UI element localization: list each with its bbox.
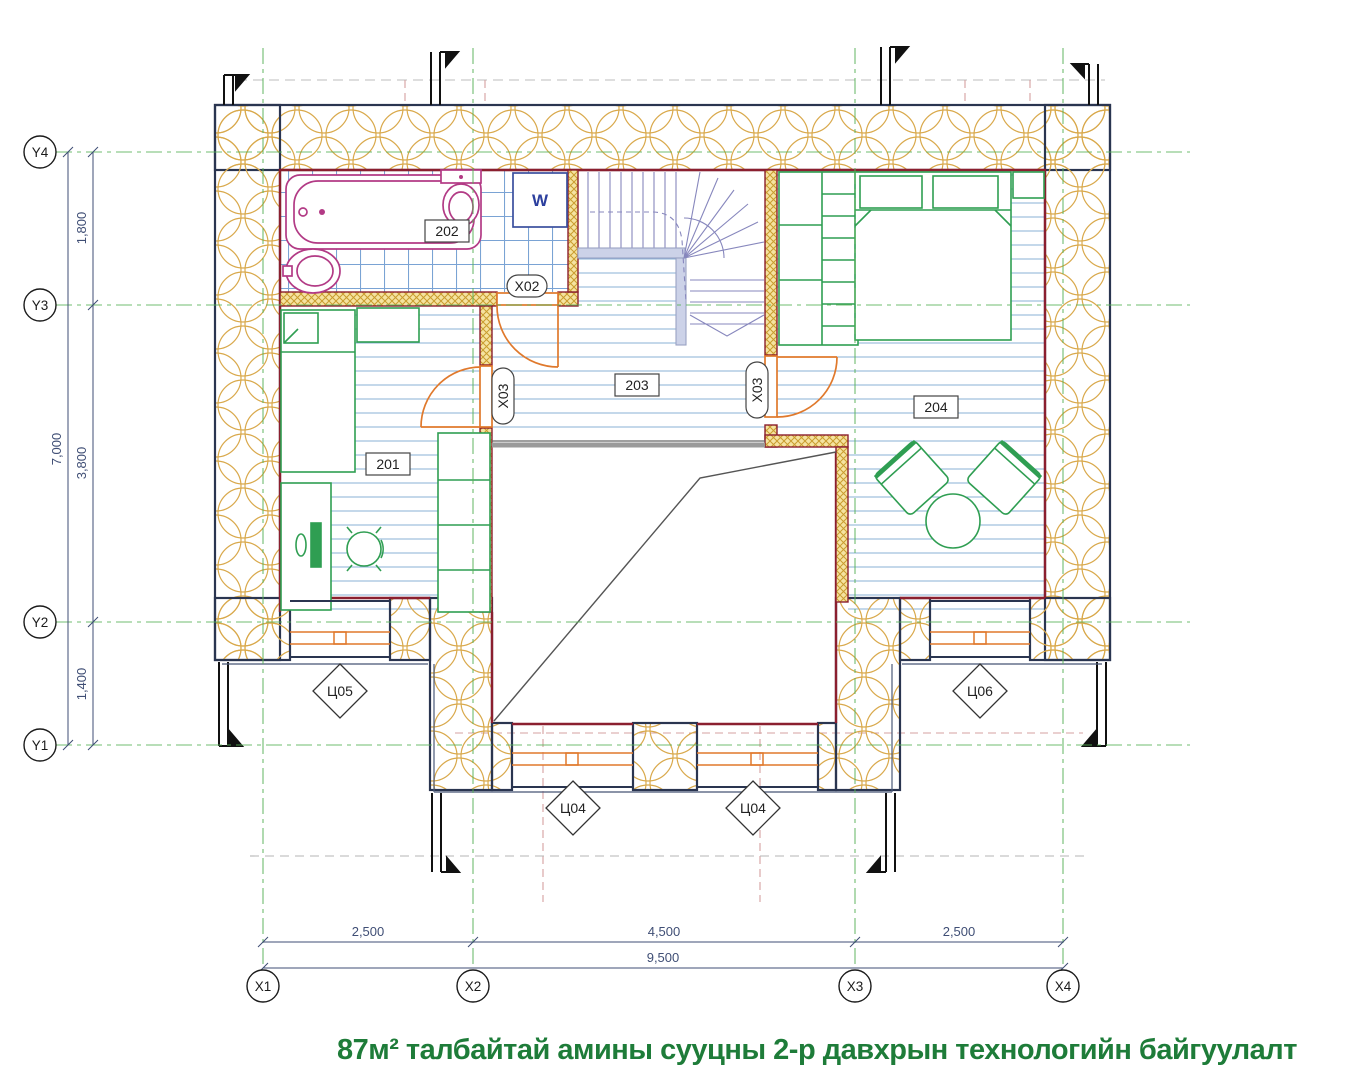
sink-inner (297, 256, 333, 286)
dim-left-seg-1: 1,800 (74, 212, 89, 245)
wardrobe-201 (438, 433, 490, 612)
chimney-top-left (224, 75, 248, 105)
nightstand (1013, 172, 1044, 198)
floor-plan-svg: W (0, 0, 1360, 1077)
partition-bathroom-south-a (280, 292, 497, 306)
toilet-button (459, 175, 463, 179)
room-203-label: 203 (625, 377, 649, 393)
sink-tap (283, 266, 292, 276)
pilaster-bottom-right (1083, 662, 1106, 746)
void-opening (492, 441, 836, 721)
wall-right (1045, 105, 1110, 660)
washing-machine-label: W (532, 191, 549, 210)
dim-left-seg-2: 3,800 (74, 447, 89, 480)
door-x02-label: X02 (515, 278, 540, 294)
dim-bottom-seg-1: 2,500 (352, 924, 385, 939)
floor-plan-canvas: W (0, 0, 1360, 1077)
wall-bottom-left-b (390, 598, 430, 660)
bubble-y2-label: Y2 (32, 615, 49, 630)
partition-204-jog (765, 435, 848, 447)
dim-left-seg-3: 1,400 (74, 668, 89, 701)
chimney-top-right (1072, 64, 1098, 105)
dim-left-total: 7,000 (49, 433, 64, 466)
room-202-label: 202 (435, 223, 459, 239)
wall-left (215, 105, 280, 660)
window-c06-label: Ц06 (967, 683, 993, 699)
bed-pillow-2 (933, 176, 998, 208)
chimney-top-mid-left (431, 52, 458, 105)
stair-landing-edge-h (578, 248, 685, 258)
window-c04-left-label: Ц04 (560, 800, 586, 816)
window-c05-label: Ц05 (327, 683, 353, 699)
wall-bottom-right-a (900, 598, 930, 660)
pilaster-protrusion-left (432, 793, 459, 872)
room-204-label: 204 (924, 399, 948, 415)
monitor-base (296, 534, 306, 556)
pier-right (836, 598, 900, 790)
dim-bottom-seg-3: 2,500 (943, 924, 976, 939)
partition-204-void (836, 447, 848, 602)
desk-chair (347, 532, 381, 566)
pier-left (430, 598, 492, 790)
bubble-x4-label: X4 (1055, 979, 1072, 994)
wardrobe-204 (779, 172, 858, 345)
bubble-y4-label: Y4 (32, 145, 49, 160)
bubble-x1-label: X1 (255, 979, 272, 994)
toilet-bowl-inner (449, 192, 473, 222)
bubble-y3-label: Y3 (32, 298, 49, 313)
partition-204-hall-a (765, 170, 777, 355)
void-diagonal-line (494, 452, 836, 721)
pier-small-right (818, 723, 836, 790)
bubble-x3-label: X3 (847, 979, 864, 994)
wall-top (215, 105, 1110, 170)
door-x03-right-label: X03 (749, 377, 765, 402)
drawing-title: 87м² талбайтай амины сууцны 2-р давхрын … (337, 1034, 1360, 1067)
wall-bottom-right-b (1030, 598, 1110, 660)
room-201-label: 201 (376, 456, 400, 472)
monitor (311, 523, 321, 567)
dim-bottom-total: 9,500 (647, 950, 680, 965)
pilaster-bottom-left (219, 662, 242, 746)
round-table (926, 494, 980, 548)
bathtub-drain (299, 208, 307, 216)
stair-upper-area (578, 170, 765, 248)
bubble-x2-label: X2 (465, 979, 482, 994)
bathtub-tap (319, 209, 325, 215)
pier-small-left (492, 723, 512, 790)
dim-bottom-seg-2: 4,500 (648, 924, 681, 939)
pier-center (633, 723, 697, 790)
dresser (357, 308, 419, 342)
partition-bathroom-south-b (558, 292, 578, 306)
bubble-y1-label: Y1 (32, 738, 49, 753)
pilaster-protrusion-right (868, 793, 895, 872)
window-c04-right (697, 753, 818, 787)
stair-lower-area (676, 248, 765, 345)
bed-pillow-1 (860, 176, 922, 208)
chimney-top-mid-right (881, 47, 908, 105)
partition-bathroom-stairs (568, 170, 578, 292)
door-x03-left-label: X03 (495, 383, 511, 408)
partition-201-hall-a (480, 306, 492, 365)
wall-bottom-left-a (215, 598, 290, 660)
window-c04-right-label: Ц04 (740, 800, 766, 816)
